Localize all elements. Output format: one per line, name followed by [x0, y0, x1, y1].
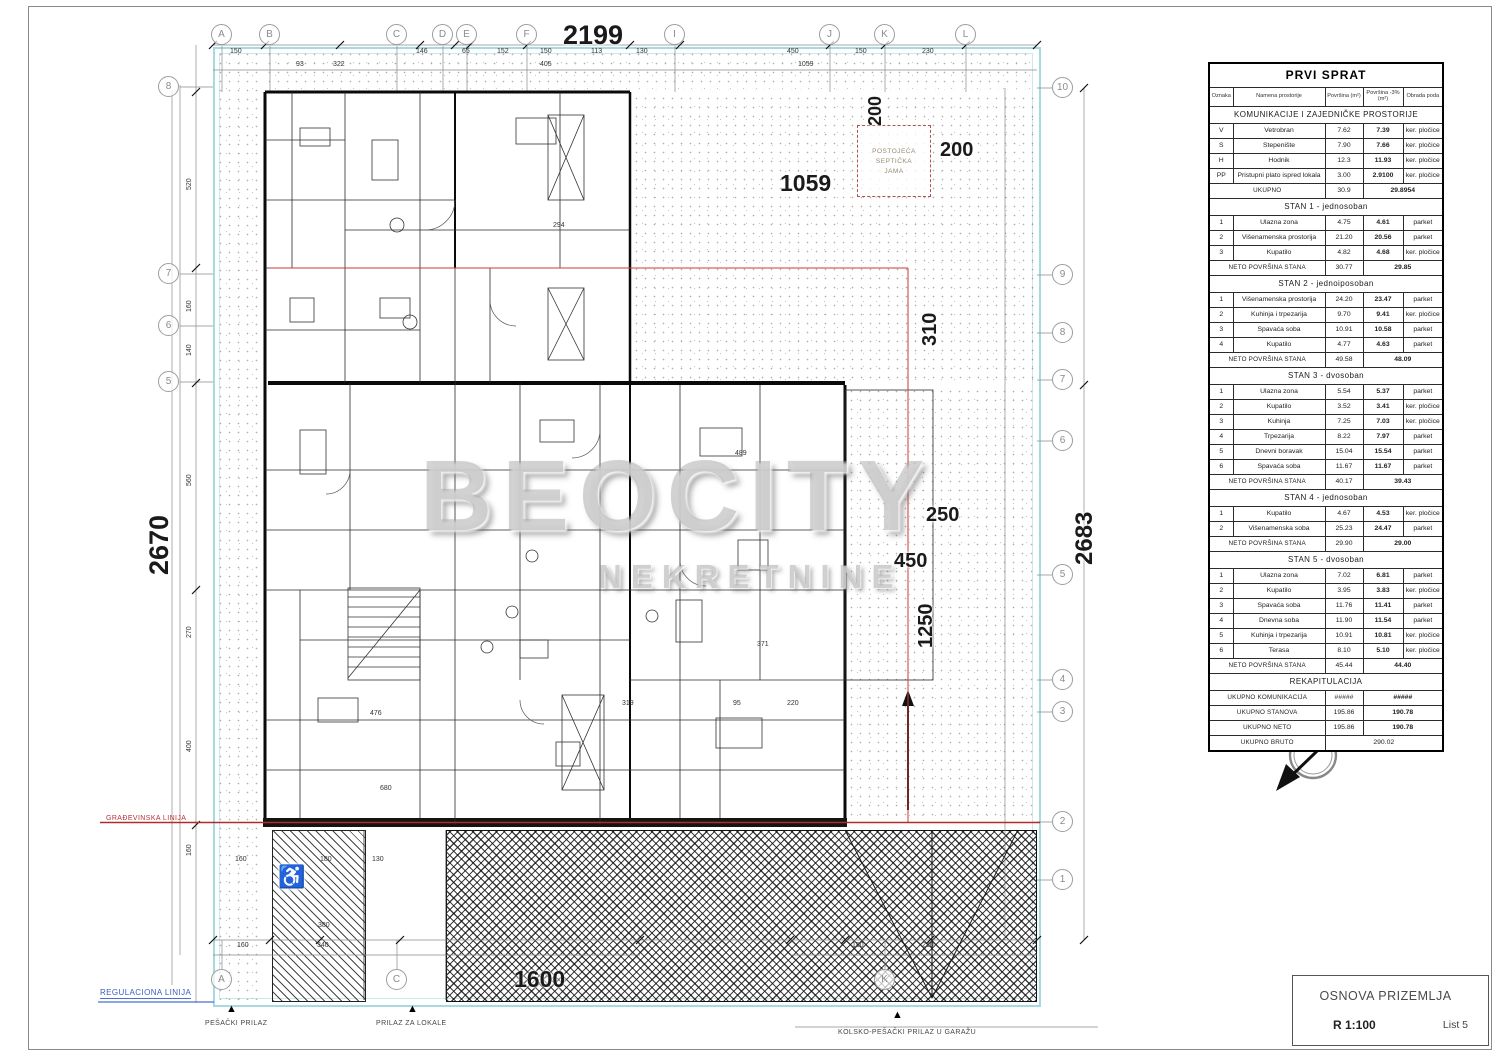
table-row: 3Spavaća soba11.7611.41parket [1209, 599, 1443, 614]
dim-label: 150 [540, 48, 552, 55]
table-header-row: Oznaka Namena prostorije Površina (m²) P… [1209, 88, 1443, 107]
table-section-row: STAN 1 - jednosoban [1209, 199, 1443, 216]
table-row: UKUPNO STANOVA195.86190.78 [1209, 706, 1443, 721]
col-header: Površina -3% (m²) [1363, 88, 1403, 107]
septic-label-3: JAMA [884, 168, 903, 175]
grid-bubble-right: 8 [1052, 322, 1073, 343]
dim-label: 130 [372, 856, 384, 863]
dim-bottom-1600: 1600 [514, 968, 565, 991]
grid-bubble-bottom: A [211, 969, 232, 990]
table-row: 3Kuhinja7.257.03ker. pločice [1209, 415, 1443, 430]
dim-label: 380 [318, 922, 330, 929]
table-row: 4Trpezarija8.227.97parket [1209, 430, 1443, 445]
dim-label: 319 [622, 700, 634, 707]
table-section-row: STAN 5 - dvosoban [1209, 552, 1443, 569]
table-row: 6Spavaća soba11.6711.67parket [1209, 460, 1443, 475]
dim-label: 294 [553, 222, 565, 229]
regulation-line-label: REGULACIONA LINIJA [100, 988, 191, 999]
table-row: 2Kupatilo3.523.41ker. pločice [1209, 400, 1443, 415]
table-title-row: PRVI SPRAT [1209, 63, 1443, 88]
grid-bubble-right: 9 [1052, 264, 1073, 285]
table-row: 5Dnevni boravak15.0415.54parket [1209, 445, 1443, 460]
table-row: 2Višenamenska soba25.2324.47parket [1209, 522, 1443, 537]
shops-access-label: PRILAZ ZA LOKALE [376, 1020, 447, 1027]
table-row: 2Višenamenska prostorija21.2020.56parket [1209, 231, 1443, 246]
table-row: NETO POVRŠINA STANA49.5848.09 [1209, 353, 1443, 368]
table-row: 4Dnevna soba11.9011.54parket [1209, 614, 1443, 629]
table-row: 2Kuhinja i trpezarija9.709.41ker. pločic… [1209, 308, 1443, 323]
table-row: VVetrobran7.627.39ker. pločice [1209, 124, 1443, 139]
table-row: 6Terasa8.105.10ker. pločice [1209, 644, 1443, 659]
table-row: 2Kupatilo3.953.83ker. pločice [1209, 584, 1443, 599]
dim-label: 450 [787, 48, 799, 55]
table-row: 3Spavaća soba10.9110.58parket [1209, 323, 1443, 338]
table-row: HHodnik12.311.93ker. pločice [1209, 154, 1443, 169]
col-header: Namena prostorije [1233, 88, 1325, 107]
dim-overall-left: 2670 [146, 515, 173, 575]
dim-label: 371 [757, 641, 769, 648]
table-row: 1Višenamenska prostorija24.2023.47parket [1209, 293, 1443, 308]
table-row: SStepenište7.907.66ker. pločice [1209, 139, 1443, 154]
dim-label: 270 [186, 626, 193, 638]
grid-bubble-top: C [386, 24, 407, 45]
grid-bubble-top: L [955, 24, 976, 45]
dim-label: 476 [370, 710, 382, 717]
dim-label: 680 [380, 785, 392, 792]
table-row: UKUPNO BRUTO290.02 [1209, 736, 1443, 752]
dim-label: 230 [922, 48, 934, 55]
grid-bubble-top: A [211, 24, 232, 45]
grid-bubble-left: 8 [158, 76, 179, 97]
table-section-row: KOMUNIKACIJE I ZAJEDNIČKE PROSTORIJE [1209, 107, 1443, 124]
grid-bubble-top: J [819, 24, 840, 45]
table-row: NETO POVRŠINA STANA29.9029.00 [1209, 537, 1443, 552]
dim-label: 1059 [798, 61, 814, 68]
dim-label: 160 [235, 856, 247, 863]
septic-label-1: POSTOJEĆA [872, 148, 916, 155]
dim-label: 152 [497, 48, 509, 55]
grid-bubble-top: F [516, 24, 537, 45]
grid-bubble-right: 6 [1052, 430, 1073, 451]
col-header: Oznaka [1209, 88, 1233, 107]
grid-bubble-top: D [432, 24, 453, 45]
dim-label: 400 [186, 740, 193, 752]
dim-200-horizontal: 200 [940, 140, 973, 160]
grid-bubble-right: 1 [1052, 869, 1073, 890]
dim-yard-1059: 1059 [780, 172, 831, 195]
grid-bubble-left: 7 [158, 263, 179, 284]
dim-label: 405 [540, 61, 552, 68]
grid-bubble-left: 6 [158, 315, 179, 336]
grid-bubble-right: 3 [1052, 701, 1073, 722]
watermark-brand: BEOCITY [420, 446, 934, 546]
sheet-number: List 5 [1443, 1019, 1468, 1031]
table-row: 4Kupatilo4.774.63parket [1209, 338, 1443, 353]
dim-label: 150 [852, 942, 864, 949]
table-section-row: REKAPITULACIJA [1209, 674, 1443, 691]
dim-label: 322 [333, 61, 345, 68]
title-block: OSNOVA PRIZEMLJA R 1:100 List 5 [1292, 975, 1489, 1046]
dim-label: 160 [186, 300, 193, 312]
dim-label: 220 [787, 700, 799, 707]
table-section-row: STAN 3 - dvosoban [1209, 368, 1443, 385]
entry-marker-icon: ▲ [407, 1004, 418, 1015]
grid-bubble-right: 7 [1052, 369, 1073, 390]
grid-bubble-top: K [874, 24, 895, 45]
table-row: 1Ulazna zona5.545.37parket [1209, 385, 1443, 400]
dim-overall-top: 2199 [563, 22, 623, 49]
dim-1250: 1250 [916, 604, 936, 649]
dim-label: 160 [186, 844, 193, 856]
dim-label: 65 [462, 48, 470, 55]
garage-access-label: KOLSKO-PEŠAČKI PRILAZ U GARAŽU [838, 1029, 976, 1036]
table-title: PRVI SPRAT [1209, 63, 1443, 88]
grid-bubble-right: 5 [1052, 564, 1073, 585]
table-row: NETO POVRŠINA STANA45.4444.40 [1209, 659, 1443, 674]
septic-label-2: SEPTIČKA [876, 158, 912, 165]
table-row: 3Kupatilo4.824.68ker. pločice [1209, 246, 1443, 261]
dim-label: 150 [230, 48, 242, 55]
areas-table: PRVI SPRAT Oznaka Namena prostorije Povr… [1208, 62, 1444, 752]
dim-310: 310 [920, 313, 940, 346]
grid-bubble-top: I [664, 24, 685, 45]
grid-bubble-left: 5 [158, 371, 179, 392]
table-row: UKUPNO30.929.8954 [1209, 184, 1443, 199]
dim-200-vertical: 200 [866, 96, 884, 126]
dim-label: 160 [237, 942, 249, 949]
dim-label: 520 [186, 178, 193, 190]
grid-bubble-bottom: C [386, 969, 407, 990]
col-header: Površina (m²) [1325, 88, 1363, 107]
pedestrian-access-label: PEŠAČKI PRILAZ [205, 1020, 267, 1027]
dim-label: 140 [186, 344, 193, 356]
table-row: PPPristupni plato ispred lokala3.002.910… [1209, 169, 1443, 184]
drawing-title: OSNOVA PRIZEMLJA [1293, 989, 1478, 1003]
table-section-row: STAN 4 - jednosoban [1209, 490, 1443, 507]
grid-bubble-right: 4 [1052, 669, 1073, 690]
dim-label: 340 [317, 942, 329, 949]
entry-marker-icon: ▲ [226, 1004, 237, 1015]
dim-label: 93 [296, 61, 304, 68]
table-row: 1Ulazna zona4.754.61parket [1209, 216, 1443, 231]
dim-label: 146 [416, 48, 428, 55]
septic-tank-box: POSTOJEĆA SEPTIČKA JAMA [857, 125, 931, 197]
table-row: 1Kupatilo4.674.53ker. pločice [1209, 507, 1443, 522]
table-section-row: STAN 2 - jednoiposoban [1209, 276, 1443, 293]
dim-overall-right: 2683 [1073, 512, 1097, 565]
grid-bubble-bottom: K [874, 969, 895, 990]
col-header: Obrada poda [1403, 88, 1443, 107]
grid-bubble-right: 2 [1052, 811, 1073, 832]
floor-plan-sheet: { "watermark": { "brand": "BEOCITY", "su… [0, 0, 1500, 1061]
table-row: 5Kuhinja i trpezarija10.9110.81ker. ploč… [1209, 629, 1443, 644]
dim-label: 113 [591, 48, 602, 55]
dim-label: 130 [636, 48, 648, 55]
table-row: UKUPNO KOMUNIKACIJA########## [1209, 691, 1443, 706]
table-row: NETO POVRŠINA STANA30.7729.85 [1209, 261, 1443, 276]
building-line-label: GRAĐEVINSKA LINIJA [106, 815, 186, 822]
dim-label: 150 [855, 48, 867, 55]
dim-label: 95 [733, 700, 741, 707]
dim-label: 230 [922, 942, 934, 949]
entry-marker-icon: ▲ [892, 1010, 903, 1021]
grid-bubble-top: B [259, 24, 280, 45]
grid-bubble-top: E [456, 24, 477, 45]
grid-bubble-right: 10 [1052, 77, 1073, 98]
dim-label: 560 [186, 474, 193, 486]
watermark-sub: NEKRETNINE [598, 560, 903, 593]
dim-label: 180 [320, 856, 332, 863]
drawing-scale: R 1:100 [1333, 1018, 1376, 1032]
table-row: NETO POVRŠINA STANA40.1739.43 [1209, 475, 1443, 490]
wheelchair-icon: ♿ [278, 866, 305, 888]
table-row: 1Ulazna zona7.026.81parket [1209, 569, 1443, 584]
table-row: UKUPNO NETO195.86190.78 [1209, 721, 1443, 736]
